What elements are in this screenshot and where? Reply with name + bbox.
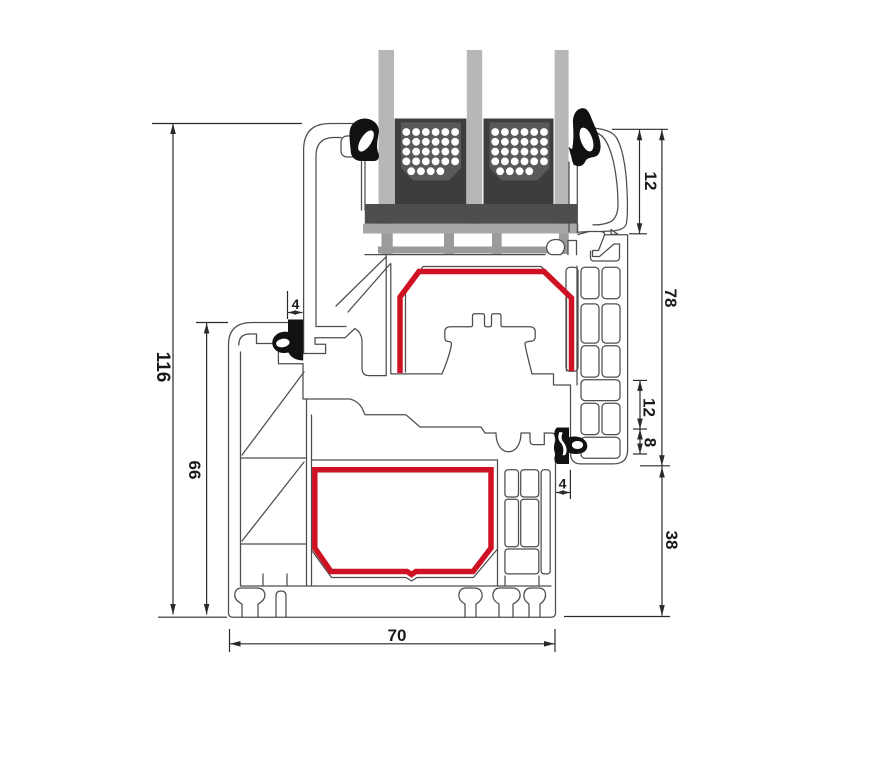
svg-text:12: 12 — [640, 398, 659, 417]
svg-text:66: 66 — [185, 461, 204, 480]
svg-text:4: 4 — [292, 296, 300, 312]
svg-text:70: 70 — [388, 626, 407, 645]
svg-text:8: 8 — [641, 438, 660, 447]
svg-text:38: 38 — [662, 531, 681, 550]
svg-text:78: 78 — [661, 289, 680, 308]
svg-text:116: 116 — [152, 352, 173, 383]
svg-text:4: 4 — [559, 476, 567, 492]
svg-text:12: 12 — [641, 172, 660, 191]
